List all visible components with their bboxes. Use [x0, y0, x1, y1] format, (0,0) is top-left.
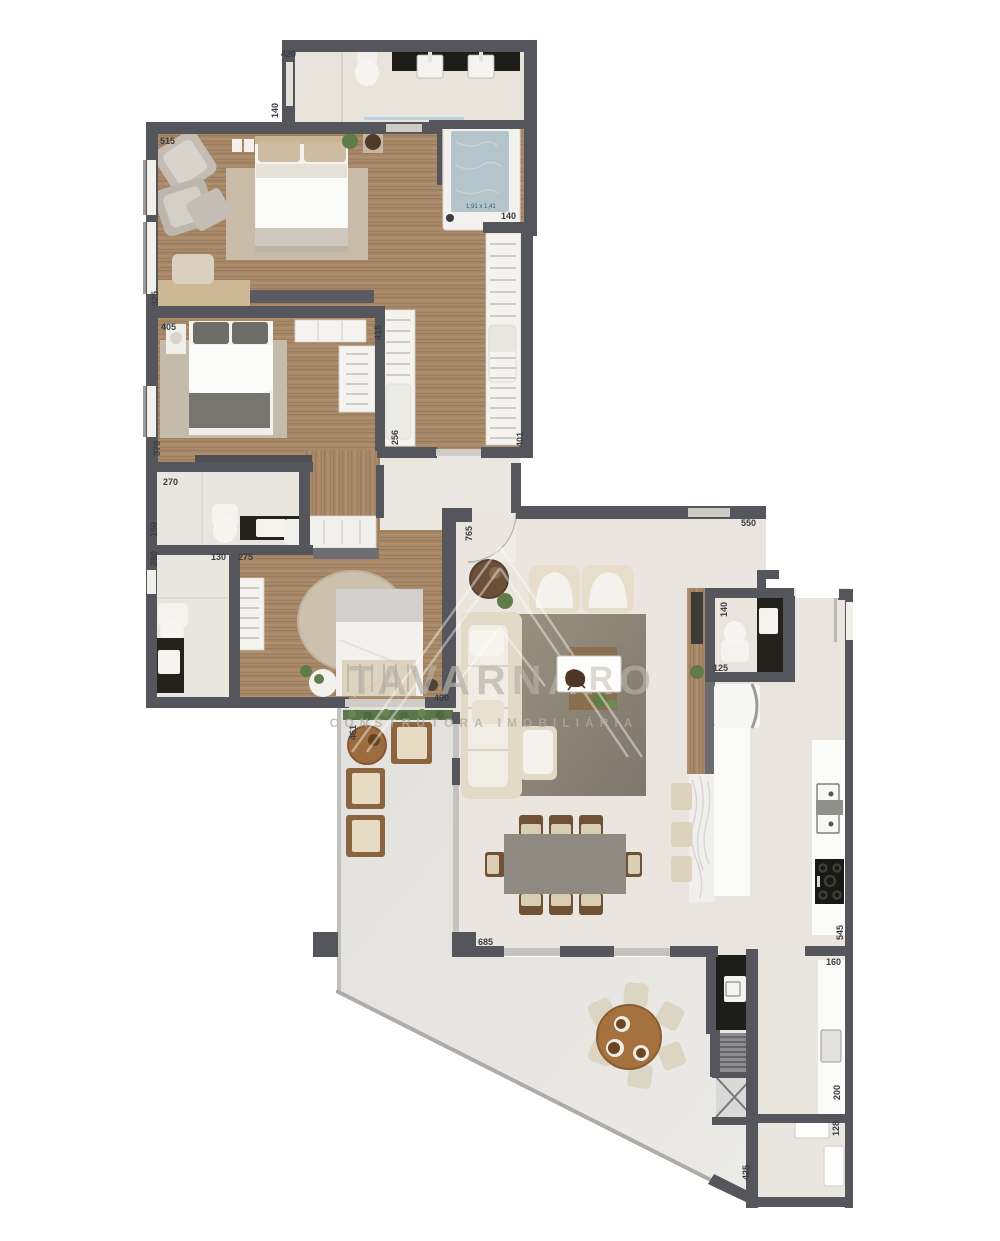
svg-text:125: 125: [713, 663, 728, 673]
svg-text:CONSTRUTORA IMOBILIÁRIA: CONSTRUTORA IMOBILIÁRIA: [330, 715, 639, 730]
svg-text:140: 140: [719, 602, 729, 617]
svg-text:280: 280: [149, 551, 159, 566]
svg-text:R: R: [589, 660, 614, 698]
svg-text:545: 545: [835, 925, 845, 940]
svg-text:140: 140: [501, 211, 516, 221]
svg-text:128: 128: [831, 1121, 841, 1136]
svg-text:685: 685: [478, 937, 493, 947]
svg-text:370: 370: [152, 441, 162, 456]
svg-text:425: 425: [741, 1165, 751, 1180]
svg-text:765: 765: [464, 526, 474, 541]
svg-text:401: 401: [515, 432, 525, 447]
svg-text:550: 550: [741, 518, 756, 528]
svg-text:405: 405: [161, 322, 176, 332]
svg-text:1,91 x 1,41: 1,91 x 1,41: [466, 204, 496, 210]
svg-text:325: 325: [150, 291, 160, 306]
svg-text:160: 160: [826, 957, 841, 967]
svg-text:130: 130: [211, 552, 226, 562]
svg-text:420: 420: [281, 49, 296, 59]
svg-text:275: 275: [238, 552, 253, 562]
svg-text:256: 256: [390, 430, 400, 445]
svg-text:150: 150: [149, 522, 159, 537]
svg-text:415: 415: [373, 325, 383, 340]
svg-text:200: 200: [832, 1085, 842, 1100]
svg-text:270: 270: [163, 477, 178, 487]
svg-text:140: 140: [270, 103, 280, 118]
svg-text:515: 515: [160, 136, 175, 146]
